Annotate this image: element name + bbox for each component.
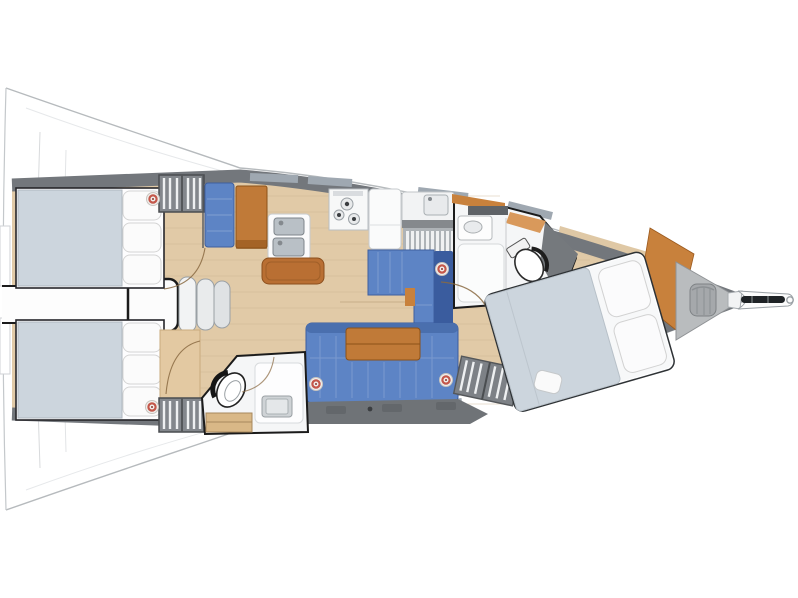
bowsprit — [728, 291, 793, 309]
galley-counter — [369, 189, 401, 249]
speaker-dinette — [436, 263, 449, 276]
fwd-galley-faucet — [428, 197, 432, 201]
bow — [676, 262, 793, 340]
chart-table-edge — [236, 240, 267, 249]
companionway-step-3 — [214, 281, 230, 328]
galley-gray-counter — [402, 220, 454, 228]
engine-space — [2, 287, 130, 322]
faucet-2 — [278, 241, 283, 246]
floor-plan-canvas — [0, 0, 798, 598]
stove-label-strip — [333, 191, 363, 196]
aft-head-sink-basin — [266, 399, 288, 414]
speaker-aft-starboard-cabin — [146, 401, 159, 414]
transom-panel-top — [0, 226, 10, 286]
boat-floor-plan — [0, 0, 798, 598]
stbd-berth-blanket — [18, 322, 122, 418]
chart-table — [236, 186, 267, 248]
fwd-head-sink-basin — [464, 221, 482, 233]
port-berth-blanket — [18, 190, 122, 286]
rope-bag — [690, 284, 716, 316]
aft-starboard-cabin — [16, 320, 204, 432]
dinette-wood-trim-1 — [405, 288, 415, 306]
speaker-aft-port-cabin — [147, 193, 160, 206]
speaker-sofa-left — [310, 378, 323, 391]
speaker-sofa-right — [440, 374, 453, 387]
sink-basin-1 — [274, 218, 304, 235]
companionway-step-1 — [179, 277, 196, 332]
fwd-head-counter — [468, 206, 508, 215]
fwd-galley-sink — [424, 195, 448, 215]
storage-latch — [368, 407, 373, 412]
companionway-step-2 — [197, 279, 214, 330]
faucet-1 — [279, 221, 284, 226]
transom-panel-bottom — [0, 318, 10, 374]
port-hanging-locker — [159, 175, 204, 212]
bowsprit-fork — [728, 291, 742, 309]
stbd-hanging-locker — [159, 398, 204, 432]
sink-basin-2 — [273, 238, 304, 256]
anchor-roller — [741, 296, 785, 303]
